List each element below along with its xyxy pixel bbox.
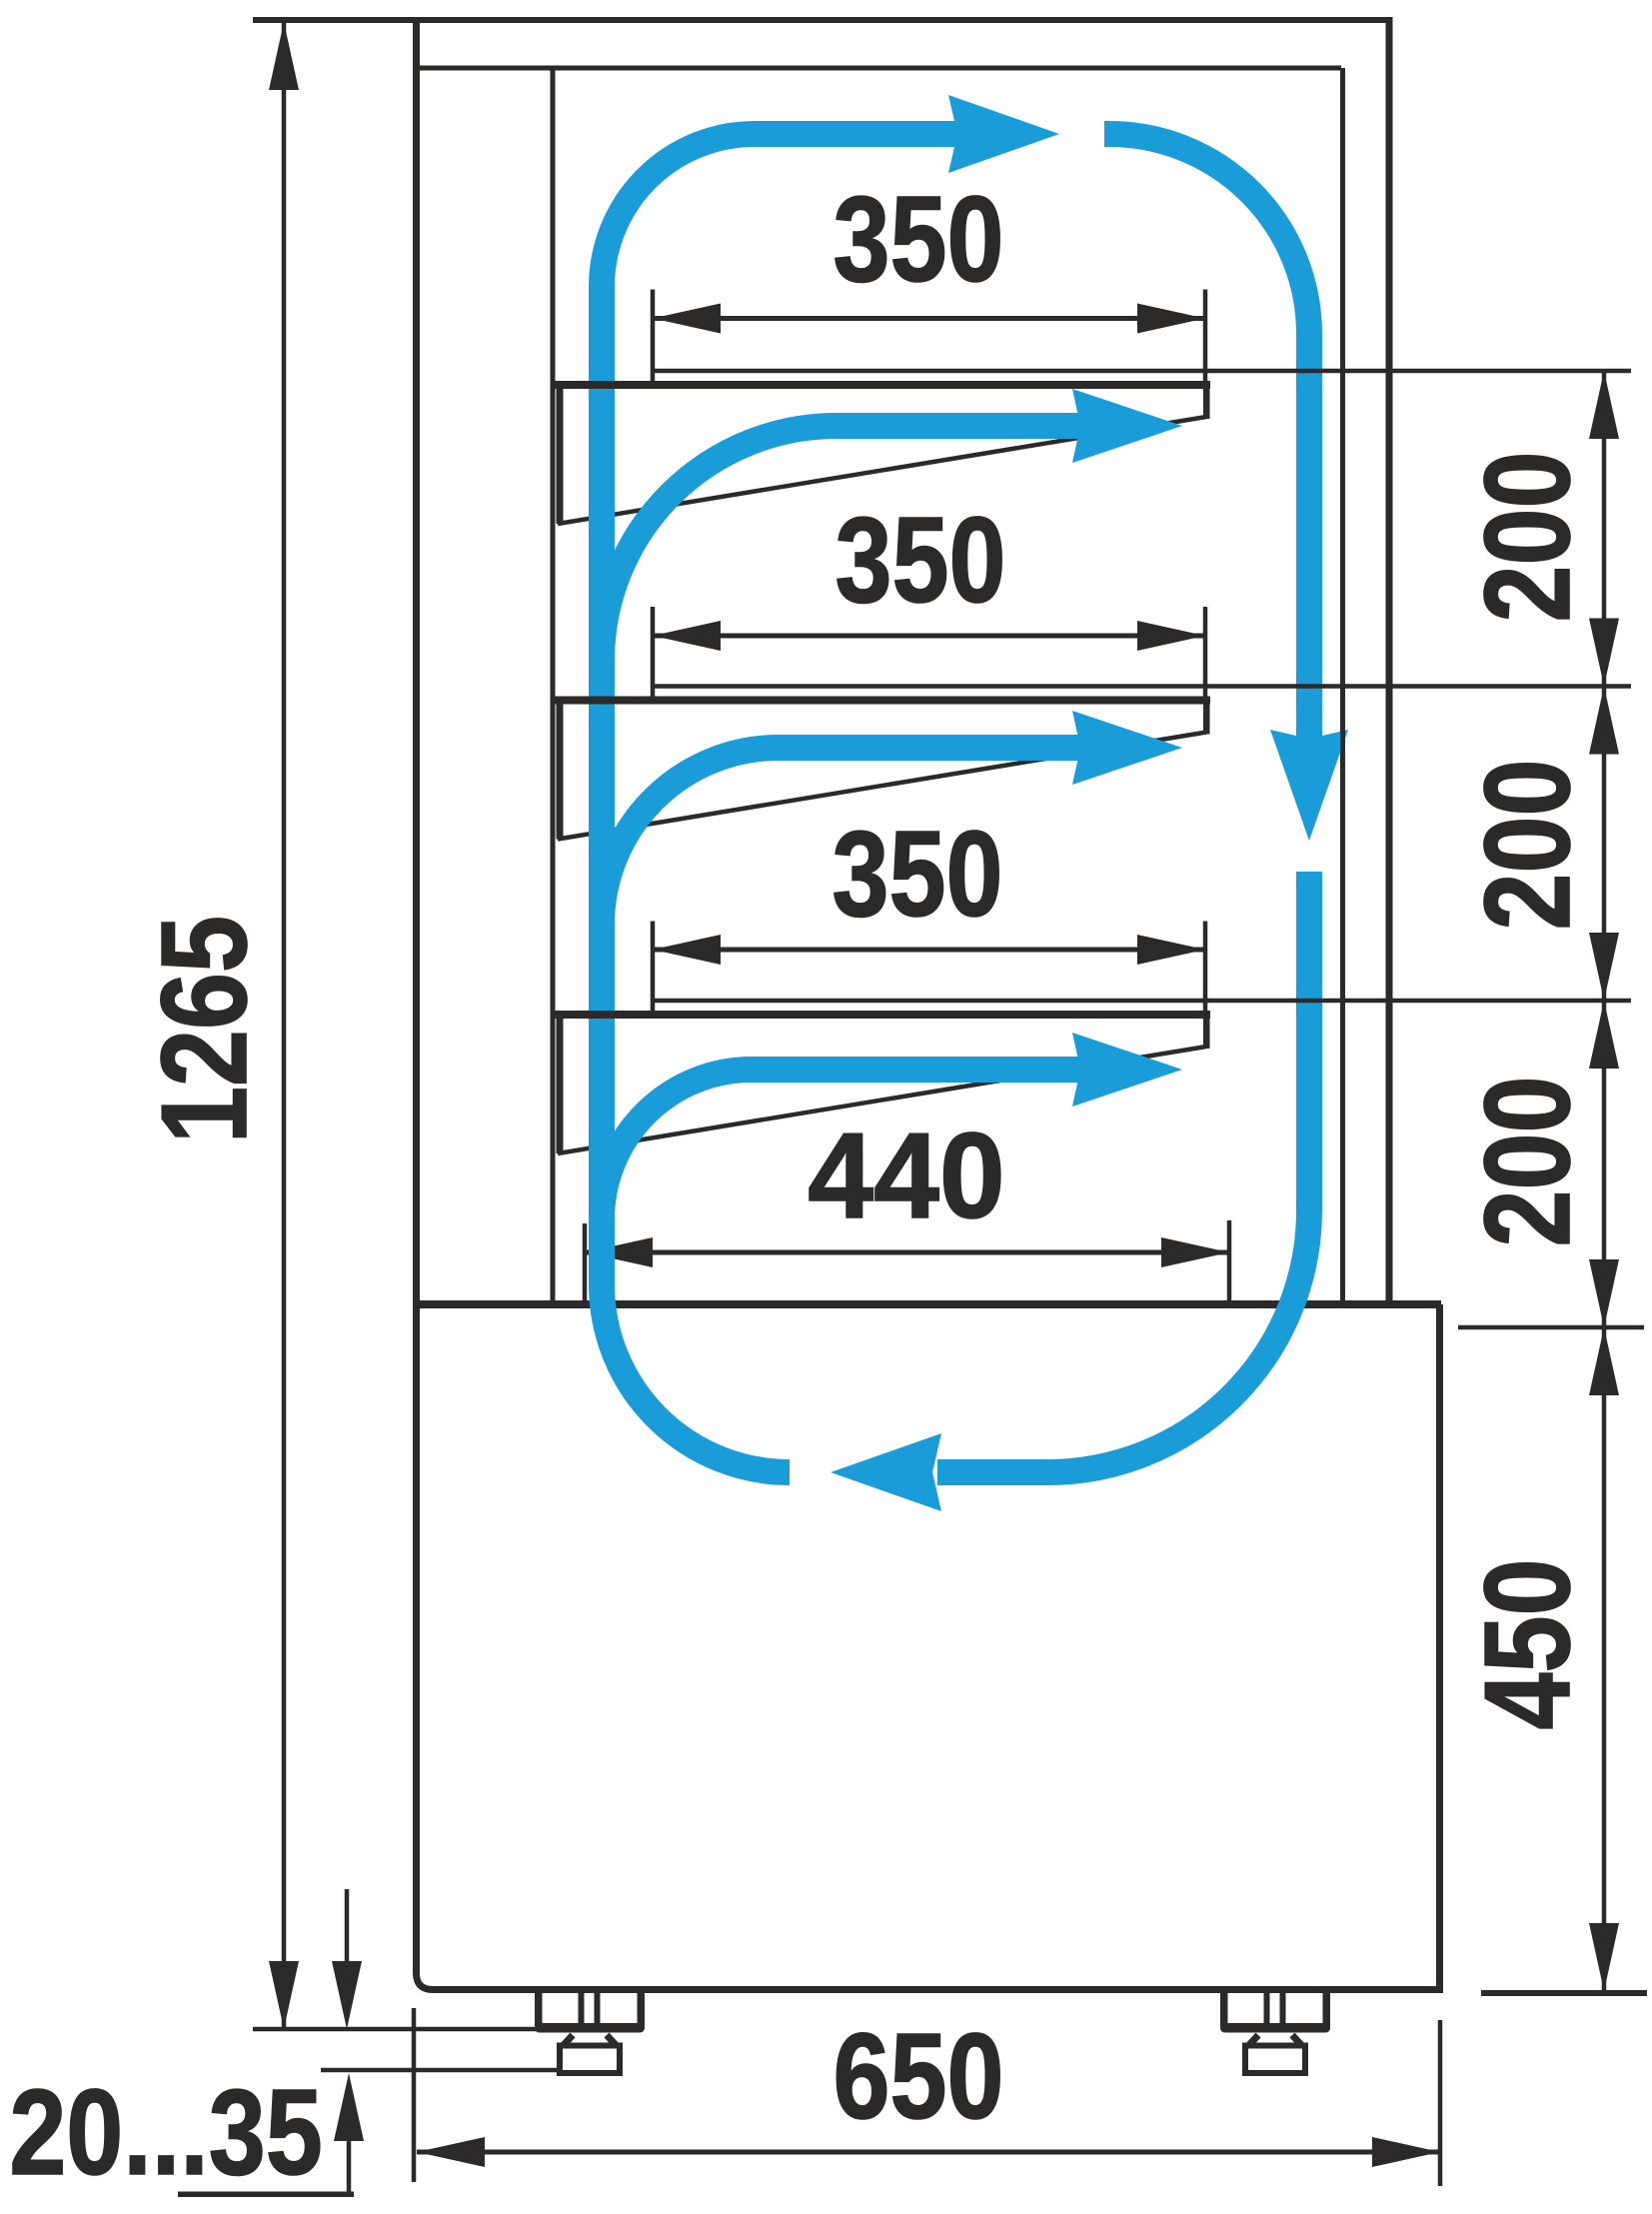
svg-text:200: 200 [1459, 452, 1595, 623]
svg-text:200: 200 [1459, 760, 1595, 931]
svg-text:1265: 1265 [136, 916, 272, 1143]
svg-text:200: 200 [1459, 1077, 1595, 1247]
svg-text:650: 650 [833, 2008, 1004, 2144]
svg-text:450: 450 [1459, 1559, 1595, 1730]
svg-text:350: 350 [832, 806, 1003, 942]
svg-text:20...35: 20...35 [9, 2064, 322, 2200]
svg-text:440: 440 [808, 1107, 1004, 1243]
svg-text:350: 350 [833, 171, 1004, 307]
svg-text:350: 350 [835, 492, 1006, 628]
